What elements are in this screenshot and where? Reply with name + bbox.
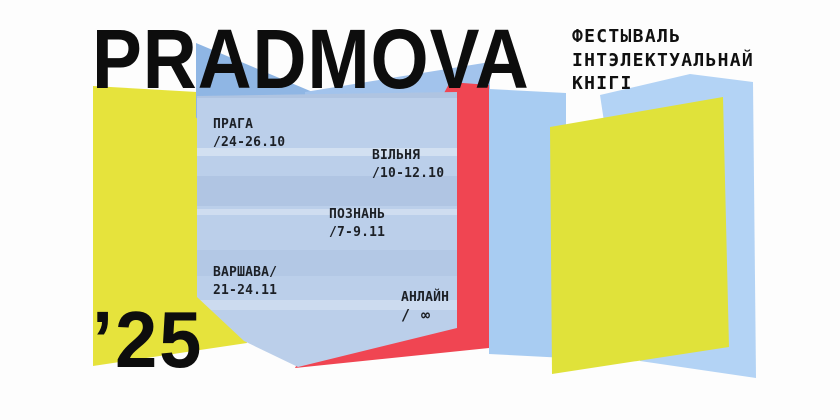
event-city: ПРАГА [213,116,285,134]
subtitle-line-3: КНІГІ [572,72,754,96]
festival-subtitle: ФЕСТЫВАЛЬ ІНТЭЛЕКТУАЛЬНАЙ КНІГІ [572,25,754,96]
event-vilnia: ВІЛЬНЯ /10-12.10 [372,147,444,182]
subtitle-line-2: ІНТЭЛЕКТУАЛЬНАЙ [572,49,754,73]
event-warsaw: ВАРШАВА/ 21-24.11 [213,264,277,299]
event-praga: ПРАГА /24-26.10 [213,116,285,151]
event-poznan: ПОЗНАНЬ /7-9.11 [329,206,385,241]
event-city: ВІЛЬНЯ [372,147,444,165]
event-date: /10-12.10 [372,165,444,183]
festival-title: PRADMOVA [92,17,530,101]
year-label: ’25 [92,300,203,380]
event-date: /24-26.10 [213,134,285,152]
event-date-infinity: / ∞ [401,307,449,325]
right-yellow-sheet [550,97,729,374]
subtitle-line-1: ФЕСТЫВАЛЬ [572,25,754,49]
event-city: ВАРШАВА/ [213,264,277,282]
festival-poster: PRADMOVA ФЕСТЫВАЛЬ ІНТЭЛЕКТУАЛЬНАЙ КНІГІ… [0,0,840,420]
event-city: ПОЗНАНЬ [329,206,385,224]
event-city: АНЛАЙН [401,289,449,307]
event-online: АНЛАЙН / ∞ [401,289,449,324]
event-date: 21-24.11 [213,282,277,300]
event-date: /7-9.11 [329,224,385,242]
